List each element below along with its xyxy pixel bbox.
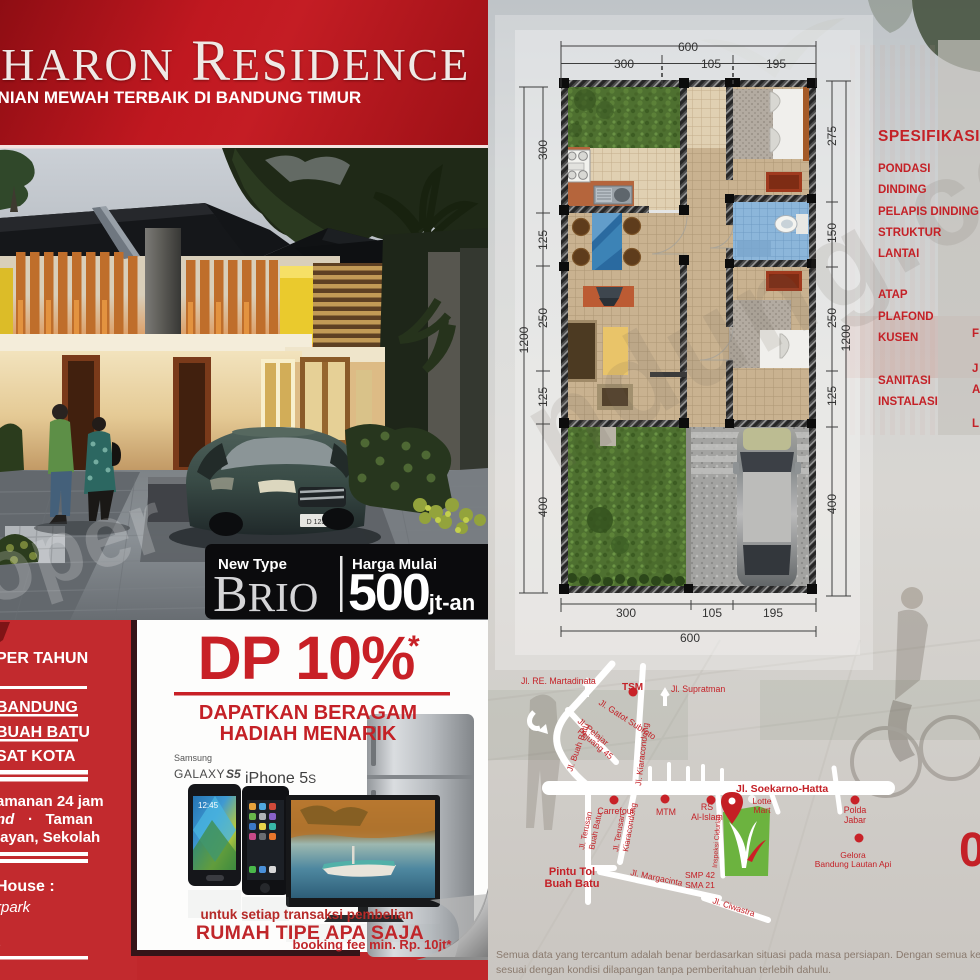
svg-text:Jl. Soekarno-Hatta: Jl. Soekarno-Hatta xyxy=(736,783,828,795)
svg-text:1200: 1200 xyxy=(517,326,531,353)
svg-text:Bandung Lautan Api: Bandung Lautan Api xyxy=(815,859,892,869)
svg-text:rpark: rpark xyxy=(0,899,32,916)
svg-text:L: L xyxy=(972,418,979,430)
svg-text:600: 600 xyxy=(680,631,700,645)
svg-text:KUSEN: KUSEN xyxy=(878,332,918,344)
svg-text:· Taman: · Taman xyxy=(28,811,93,828)
svg-text:125: 125 xyxy=(825,386,839,406)
svg-text:105: 105 xyxy=(701,57,721,71)
svg-text:SANITASI: SANITASI xyxy=(878,375,931,387)
svg-text:PONDASI: PONDASI xyxy=(878,163,930,175)
svg-text:Pintu Tol: Pintu Tol xyxy=(549,866,595,878)
svg-text:BANDUNG: BANDUNG xyxy=(0,699,78,716)
svg-text:400: 400 xyxy=(536,497,550,517)
svg-text:S5: S5 xyxy=(226,767,241,781)
svg-text:Polda: Polda xyxy=(844,805,867,815)
svg-text:Samsung: Samsung xyxy=(174,753,212,763)
svg-text:DINDING: DINDING xyxy=(878,184,927,196)
svg-text:HADIAH MENARIK: HADIAH MENARIK xyxy=(220,723,397,745)
svg-text:400: 400 xyxy=(825,494,839,514)
svg-text:105: 105 xyxy=(702,606,722,620)
svg-text:125: 125 xyxy=(536,230,550,250)
svg-text:300: 300 xyxy=(536,140,550,160)
svg-text:nd: nd xyxy=(0,811,15,828)
svg-text:LANTAI: LANTAI xyxy=(878,248,919,260)
svg-text:STRUKTUR: STRUKTUR xyxy=(878,227,942,239)
svg-text:iPhone 5S: iPhone 5S xyxy=(245,770,316,787)
svg-text:Semua data yang tercantum adal: Semua data yang tercantum adalah benar b… xyxy=(496,949,980,961)
svg-text:Mart: Mart xyxy=(754,805,772,815)
svg-text:House :: House : xyxy=(0,878,55,895)
svg-text:195: 195 xyxy=(766,57,786,71)
svg-text:600: 600 xyxy=(678,40,698,54)
svg-text:untuk setiap transaksi pembeli: untuk setiap transaksi pembelian xyxy=(200,907,413,922)
svg-text:Jabar: Jabar xyxy=(844,815,866,825)
svg-text:layan, Sekolah: layan, Sekolah xyxy=(0,829,100,846)
svg-text:300: 300 xyxy=(614,57,634,71)
svg-text:Buah Batu: Buah Batu xyxy=(545,878,600,890)
svg-text:J: J xyxy=(972,363,978,375)
svg-text:ATAP: ATAP xyxy=(878,289,908,301)
svg-text:F: F xyxy=(972,328,979,340)
svg-text:INSTALASI: INSTALASI xyxy=(878,396,938,408)
svg-text:12:45: 12:45 xyxy=(198,801,219,810)
svg-text:GALAXY: GALAXY xyxy=(174,767,225,781)
svg-text:SMP 42: SMP 42 xyxy=(685,870,715,880)
svg-text:sesuai dengan kondisi dilapang: sesuai dengan kondisi dilapangan tanpa p… xyxy=(496,964,831,976)
svg-text:A: A xyxy=(972,384,980,396)
svg-text:*: * xyxy=(408,630,420,663)
svg-text:amanan 24 jam: amanan 24 jam xyxy=(0,793,104,810)
svg-text:195: 195 xyxy=(763,606,783,620)
svg-text:BRIO: BRIO xyxy=(213,566,318,620)
svg-text:MTM: MTM xyxy=(656,807,676,817)
svg-text:RS: RS xyxy=(701,802,713,812)
svg-text:PER TAHUN: PER TAHUN xyxy=(0,650,88,667)
svg-text:250: 250 xyxy=(536,308,550,328)
svg-text:Jl. RE. Martadinata: Jl. RE. Martadinata xyxy=(521,676,596,686)
svg-text:BUAH BATU: BUAH BATU xyxy=(0,724,90,741)
svg-text:SMA 21: SMA 21 xyxy=(685,880,715,890)
svg-text:08: 08 xyxy=(959,824,980,877)
svg-text:Jl. Supratman: Jl. Supratman xyxy=(671,684,725,694)
svg-text:SAT KOTA: SAT KOTA xyxy=(0,748,76,765)
svg-text:TSM: TSM xyxy=(622,682,643,693)
svg-text:SPESIFIKASI BANGUNAN: SPESIFIKASI BANGUNAN xyxy=(878,128,980,145)
svg-text:PELAPIS DINDING: PELAPIS DINDING xyxy=(878,206,979,218)
svg-text:booking fee min. Rp. 10jt*: booking fee min. Rp. 10jt* xyxy=(293,937,453,952)
svg-text:275: 275 xyxy=(825,126,839,146)
svg-text:PLAFOND: PLAFOND xyxy=(878,311,934,323)
svg-text:300: 300 xyxy=(616,606,636,620)
svg-text:DP 10%: DP 10% xyxy=(198,624,415,692)
svg-text:DAPATKAN BERAGAM: DAPATKAN BERAGAM xyxy=(199,702,417,724)
